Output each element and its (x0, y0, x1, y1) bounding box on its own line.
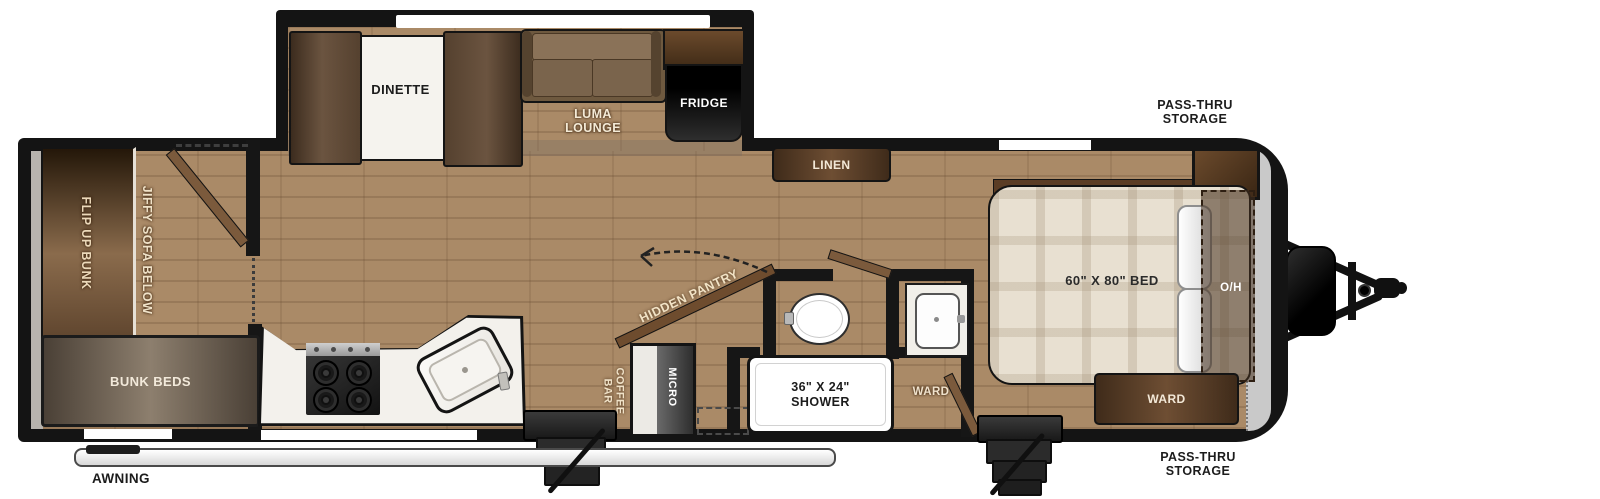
stove-control-panel (306, 343, 380, 356)
dinette-bench-right (443, 31, 523, 167)
linen-cabinet: LINEN (772, 147, 891, 182)
stove-knob (314, 347, 319, 352)
microwave-label: MICRO (666, 367, 678, 406)
stove-burner (346, 360, 372, 386)
bedroom-ward-cabinet: WARD (1094, 373, 1239, 425)
toilet-flush-handle (784, 312, 794, 325)
sofa-seat-cushion-left (532, 59, 593, 97)
awning-label: AWNING (92, 471, 182, 486)
kitchen-faucet (497, 371, 510, 390)
awning-rail (74, 448, 836, 467)
hitch-coupler-tip (1396, 282, 1407, 294)
hitch-crossbar (1348, 262, 1356, 320)
bed-label: 60" X 80" BED (1062, 274, 1162, 289)
bunk-beds-label: BUNK BEDS (110, 374, 191, 389)
vanity-counter (905, 283, 969, 357)
awning-rail-end-cap (86, 445, 140, 454)
bunk-room-door-swing-dashes (176, 144, 248, 147)
sofa-armrest-right (651, 31, 661, 97)
stove-knob (331, 347, 336, 352)
shower-pan-inner-line (755, 363, 886, 426)
shower-pan: 36" X 24" SHOWER (747, 355, 894, 434)
stove-cooktop (306, 343, 380, 415)
propane-tank-cover (1286, 246, 1336, 336)
bunk-beds: BUNK BEDS (41, 335, 260, 427)
vanity-faucet (957, 315, 965, 323)
kitchen-window (261, 430, 477, 440)
sofa-seat-cushion-right (592, 59, 653, 97)
sofa-armrest-left (522, 31, 532, 97)
rv-floorplan-canvas: FLIP UP BUNK JIFFY SOFA BELOW BUNK BEDS … (0, 0, 1600, 499)
toilet-seat-ring (796, 300, 843, 338)
bedroom-ward-label: WARD (1147, 392, 1185, 406)
hitch-pin (1358, 284, 1371, 297)
dinette-table (360, 35, 445, 161)
linen-label: LINEN (813, 158, 851, 172)
fridge-label: FRIDGE (680, 96, 728, 110)
luma-lounge-sofa (520, 29, 667, 103)
sofa-back-cushion (532, 33, 653, 61)
pass-thru-storage-label-bottom: PASS-THRU STORAGE (1143, 450, 1253, 479)
toilet-room-wall-left (763, 269, 776, 359)
stove-knob (365, 347, 370, 352)
stove-burner (313, 387, 339, 413)
jiffy-sofa-label: JIFFY SOFA BELOW (140, 186, 154, 315)
overhead-label: O/H (1212, 282, 1250, 294)
fridge: FRIDGE (665, 64, 743, 142)
pass-thru-storage-label-top: PASS-THRU STORAGE (1140, 98, 1250, 127)
bedroom-window (999, 140, 1091, 150)
dinette-label: DINETTE (360, 82, 441, 97)
floor-hatch-dashed-outline (697, 407, 749, 435)
stove-burner (346, 387, 372, 413)
dinette-bench-left (289, 31, 362, 165)
stove-knob (348, 347, 353, 352)
slideout-window (396, 15, 710, 28)
toilet-vanity-divider-wall (886, 269, 899, 359)
bunk-room-window (84, 429, 172, 439)
bunk-room-passage-dotted-line (252, 258, 255, 322)
toilet (789, 293, 850, 345)
stove-burner (313, 360, 339, 386)
vanity-sink-drain (934, 317, 939, 322)
luma-lounge-label: LUMA LOUNGE (551, 108, 635, 136)
flip-up-bunk-label: FLIP UP BUNK (79, 196, 93, 289)
microwave-cabinet (630, 343, 696, 437)
hidden-pantry-swing-arrow (627, 240, 772, 282)
